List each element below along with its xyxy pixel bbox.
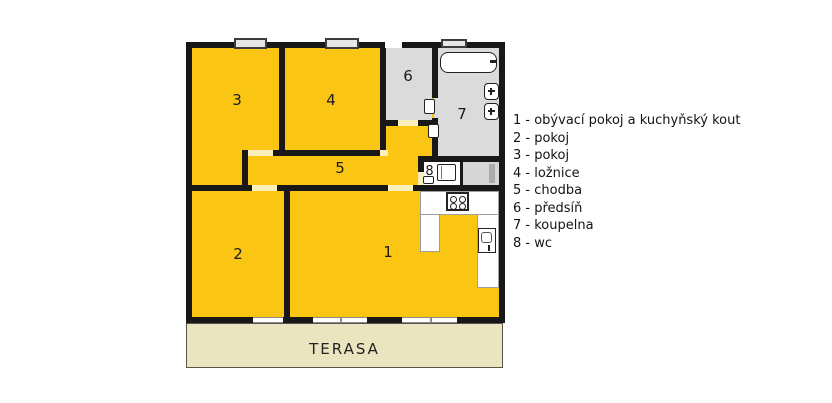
room-4-label: 4 xyxy=(322,92,340,108)
wall-mid-c xyxy=(413,185,499,191)
door-room6-hall xyxy=(398,120,418,126)
room-3-label: 3 xyxy=(228,92,246,108)
terrace-label: TERASA xyxy=(309,334,380,358)
door-corridor-room3 xyxy=(248,150,273,156)
floor-plan-canvas: 3 4 6 7 5 8 2 1 TERASA 1 - obývací pokoj… xyxy=(0,0,832,403)
entrance-door-opening xyxy=(385,42,402,48)
kitchen-counter-left xyxy=(420,214,440,252)
wall-wc-shaft-divider xyxy=(460,162,463,185)
terrace: TERASA xyxy=(186,323,503,368)
washbasin-tap-v xyxy=(490,108,492,115)
wall-room3-room4 xyxy=(279,48,285,150)
wall-left xyxy=(186,42,192,323)
door-hall-room1 xyxy=(388,185,413,191)
window-mullion xyxy=(340,318,342,322)
legend-item-3: 3 - pokoj xyxy=(513,147,813,165)
bathtub-tap xyxy=(490,60,496,63)
stove-burner xyxy=(450,203,457,210)
window-mullion xyxy=(430,318,432,322)
wall-mid-a xyxy=(192,185,252,191)
door-leaf-icon xyxy=(428,124,439,138)
legend-item-7: 7 - koupelna xyxy=(513,217,813,235)
wall-wc-top xyxy=(418,156,499,162)
sink-basin xyxy=(481,232,492,243)
legend-item-2: 2 - pokoj xyxy=(513,130,813,148)
sink-tap xyxy=(488,245,490,251)
room-1-label: 1 xyxy=(379,244,397,260)
legend-item-1: 1 - obývací pokoj a kuchyňský kout xyxy=(513,112,813,130)
room-2-label: 2 xyxy=(229,246,247,262)
wall-right xyxy=(499,42,505,323)
room-6-label: 6 xyxy=(399,68,417,84)
stove-burner xyxy=(459,203,466,210)
wall-room2-room1 xyxy=(284,191,290,317)
stove-burner xyxy=(450,196,457,203)
kitchen-sink-icon xyxy=(478,228,496,253)
room-7-label: 7 xyxy=(453,106,471,122)
stove-icon xyxy=(446,192,469,211)
legend-item-8: 8 - wc xyxy=(513,235,813,253)
stove-burner xyxy=(459,196,466,203)
wall-room4-right xyxy=(380,48,386,150)
window-icon-room4 xyxy=(325,38,359,49)
legend-item-5: 5 - chodba xyxy=(513,182,813,200)
wall-room6-bottom-a xyxy=(386,120,398,126)
legend: 1 - obývací pokoj a kuchyňský kout 2 - p… xyxy=(513,112,813,257)
door-corridor-room2 xyxy=(252,185,277,191)
door-corridor-hall xyxy=(380,150,388,156)
room-5-label: 5 xyxy=(331,160,349,176)
shaft-duct-bar xyxy=(489,164,495,183)
toilet-icon xyxy=(437,164,456,181)
washbasin-tap-v xyxy=(490,88,492,95)
wall-bath-left-upper xyxy=(432,48,438,98)
legend-item-4: 4 - ložnice xyxy=(513,165,813,183)
legend-item-6: 6 - předsíň xyxy=(513,200,813,218)
toilet-cistern-line xyxy=(441,166,442,179)
wall-mid-b xyxy=(277,185,388,191)
door-leaf-icon xyxy=(424,99,435,114)
window-icon-room3 xyxy=(234,38,267,49)
room-8-label: 8 xyxy=(424,165,435,179)
wall-corridor-top xyxy=(273,150,382,156)
bathtub-icon xyxy=(440,52,497,73)
window-icon-bathroom xyxy=(441,39,467,48)
